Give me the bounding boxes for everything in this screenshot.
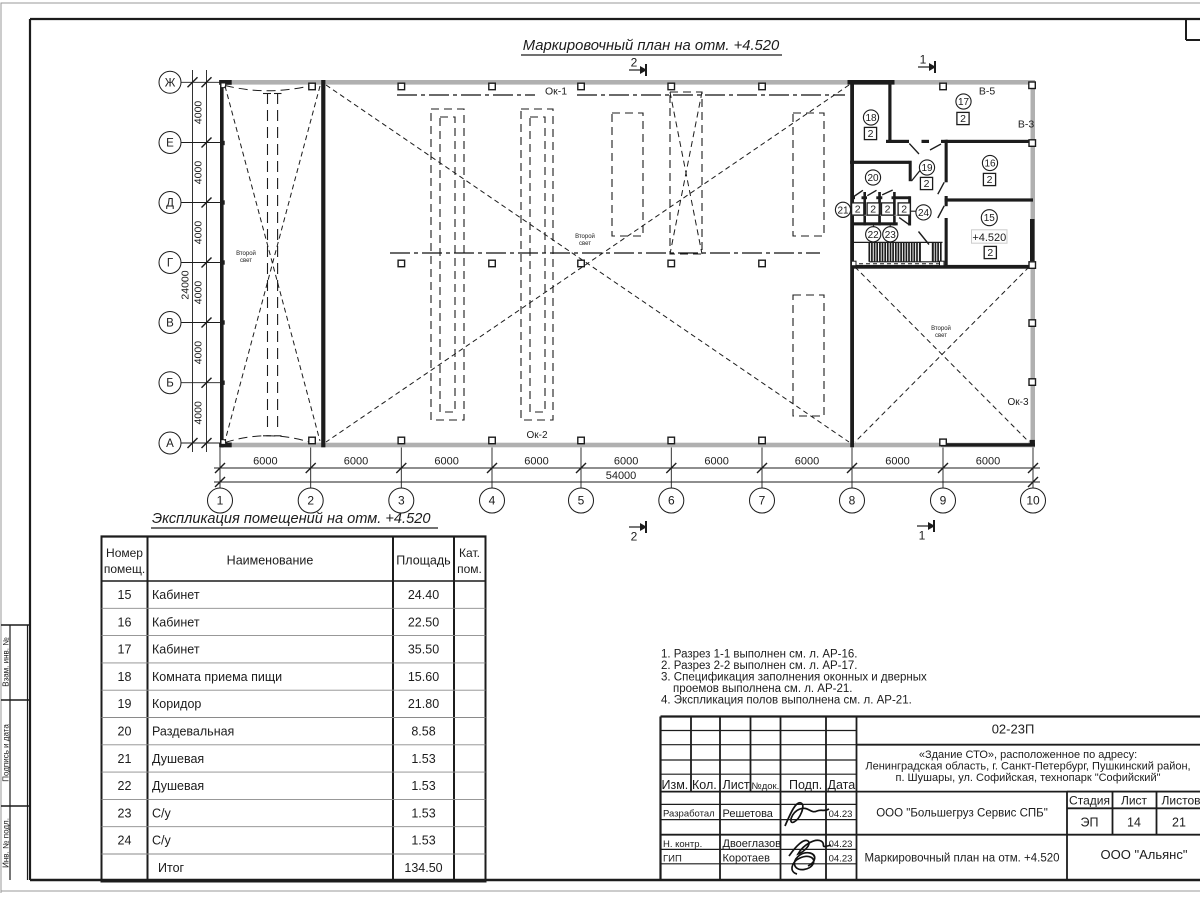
svg-text:04.23: 04.23 bbox=[829, 839, 853, 850]
svg-text:20: 20 bbox=[867, 173, 879, 184]
svg-text:Ок-3: Ок-3 bbox=[1007, 397, 1028, 408]
svg-text:А: А bbox=[166, 438, 174, 450]
svg-text:Кабинет: Кабинет bbox=[152, 615, 200, 629]
svg-text:14: 14 bbox=[1127, 816, 1141, 830]
svg-text:1: 1 bbox=[217, 494, 224, 508]
svg-text:Душевая: Душевая bbox=[152, 752, 204, 766]
svg-text:Д: Д bbox=[166, 198, 174, 210]
svg-text:Взам. инв. №: Взам. инв. № bbox=[1, 637, 10, 687]
svg-text:пом.: пом. bbox=[457, 562, 482, 576]
svg-text:Кабинет: Кабинет bbox=[152, 588, 200, 602]
svg-text:6000: 6000 bbox=[524, 456, 548, 468]
svg-text:свет: свет bbox=[935, 333, 947, 339]
svg-text:21: 21 bbox=[118, 752, 132, 766]
svg-text:Стадия: Стадия bbox=[1069, 794, 1110, 808]
svg-text:21: 21 bbox=[837, 205, 849, 216]
svg-text:Коридор: Коридор bbox=[152, 697, 201, 711]
svg-text:Кол.: Кол. bbox=[692, 778, 717, 792]
svg-text:22: 22 bbox=[868, 230, 880, 241]
svg-text:24000: 24000 bbox=[180, 270, 192, 299]
svg-text:ЭП: ЭП bbox=[1081, 816, 1099, 830]
svg-text:4000: 4000 bbox=[193, 341, 205, 365]
svg-text:Раздевальная: Раздевальная bbox=[152, 724, 234, 738]
svg-text:Б: Б bbox=[166, 378, 174, 390]
svg-text:ГИП: ГИП bbox=[663, 854, 682, 865]
svg-text:Разработал: Разработал bbox=[663, 809, 715, 820]
svg-text:23: 23 bbox=[118, 806, 132, 820]
svg-text:22: 22 bbox=[118, 779, 132, 793]
svg-text:№док.: №док. bbox=[752, 781, 780, 792]
svg-text:Подп.: Подп. bbox=[789, 778, 822, 792]
svg-text:6000: 6000 bbox=[704, 456, 728, 468]
svg-text:«Здание СТО», расположенное по: «Здание СТО», расположенное по адресу: bbox=[919, 749, 1137, 761]
svg-text:20: 20 bbox=[118, 724, 132, 738]
svg-text:2: 2 bbox=[868, 128, 874, 140]
svg-text:6000: 6000 bbox=[976, 456, 1000, 468]
svg-text:6000: 6000 bbox=[614, 456, 638, 468]
svg-text:С/у: С/у bbox=[152, 806, 172, 820]
svg-text:Кат.: Кат. bbox=[459, 546, 480, 560]
svg-text:8: 8 bbox=[849, 494, 856, 508]
svg-text:2: 2 bbox=[631, 530, 638, 544]
svg-text:6000: 6000 bbox=[344, 456, 368, 468]
svg-text:16: 16 bbox=[118, 615, 132, 629]
svg-text:Второй: Второй bbox=[575, 233, 595, 240]
svg-text:Второй: Второй bbox=[236, 250, 256, 257]
svg-text:1.53: 1.53 bbox=[411, 752, 435, 766]
svg-text:2: 2 bbox=[987, 247, 993, 259]
svg-text:Наименование: Наименование bbox=[227, 554, 314, 568]
svg-text:4000: 4000 bbox=[193, 281, 205, 305]
svg-text:ООО "Альянс": ООО "Альянс" bbox=[1101, 847, 1188, 862]
svg-text:Е: Е bbox=[166, 138, 174, 150]
svg-text:Ок-1: Ок-1 bbox=[545, 86, 567, 98]
svg-text:2: 2 bbox=[307, 494, 314, 508]
svg-text:8.58: 8.58 bbox=[411, 724, 435, 738]
svg-text:Площадь: Площадь bbox=[396, 554, 450, 568]
svg-text:15: 15 bbox=[984, 213, 996, 224]
svg-text:23: 23 bbox=[885, 230, 897, 241]
svg-text:1: 1 bbox=[919, 529, 926, 543]
svg-text:1: 1 bbox=[920, 53, 927, 67]
svg-text:Ленинградская область, г. Санк: Ленинградская область, г. Санкт-Петербур… bbox=[865, 761, 1190, 773]
svg-text:10: 10 bbox=[1026, 494, 1040, 508]
svg-text:4: 4 bbox=[489, 494, 496, 508]
svg-text:Маркировочный план на отм. +4.: Маркировочный план на отм. +4.520 bbox=[523, 38, 780, 54]
svg-text:ООО "Большегруз Сервис СПБ": ООО "Большегруз Сервис СПБ" bbox=[876, 808, 1048, 820]
svg-text:21.80: 21.80 bbox=[408, 697, 439, 711]
svg-text:В-5: В-5 bbox=[979, 86, 996, 98]
svg-text:9: 9 bbox=[940, 494, 947, 508]
svg-text:Листов: Листов bbox=[1162, 794, 1200, 808]
svg-text:Инв. № подл.: Инв. № подл. bbox=[1, 818, 10, 868]
svg-text:18: 18 bbox=[118, 670, 132, 684]
svg-text:Дата: Дата bbox=[828, 778, 856, 792]
svg-text:4000: 4000 bbox=[193, 401, 205, 425]
svg-text:35.50: 35.50 bbox=[408, 643, 439, 657]
svg-text:6000: 6000 bbox=[253, 456, 277, 468]
svg-text:2: 2 bbox=[631, 56, 638, 70]
svg-text:Итог: Итог bbox=[158, 861, 185, 875]
svg-text:2: 2 bbox=[855, 204, 861, 216]
svg-text:17: 17 bbox=[958, 97, 970, 108]
svg-text:2: 2 bbox=[870, 204, 876, 216]
svg-text:2: 2 bbox=[924, 178, 930, 190]
svg-text:Номер: Номер bbox=[106, 546, 143, 560]
svg-text:04.23: 04.23 bbox=[829, 809, 853, 820]
svg-text:Лист: Лист bbox=[1121, 794, 1148, 808]
svg-text:Маркировочный план на отм. +4.: Маркировочный план на отм. +4.520 bbox=[864, 853, 1059, 865]
svg-text:1.53: 1.53 bbox=[411, 806, 435, 820]
svg-text:5: 5 bbox=[578, 494, 585, 508]
svg-text:Ж: Ж bbox=[165, 77, 176, 89]
svg-text:Лист: Лист bbox=[723, 778, 750, 792]
svg-text:6: 6 bbox=[668, 494, 675, 508]
svg-text:15: 15 bbox=[118, 588, 132, 602]
svg-text:24: 24 bbox=[118, 834, 132, 848]
svg-text:7: 7 bbox=[759, 494, 766, 508]
svg-text:Второй: Второй bbox=[931, 325, 951, 332]
svg-text:Кабинет: Кабинет bbox=[152, 643, 200, 657]
svg-text:54000: 54000 bbox=[606, 470, 637, 482]
svg-text:3. Спецификация заполнения око: 3. Спецификация заполнения оконных и две… bbox=[661, 672, 927, 684]
svg-text:4000: 4000 bbox=[193, 221, 205, 245]
svg-text:21: 21 bbox=[1172, 816, 1186, 830]
svg-text:Душевая: Душевая bbox=[152, 779, 204, 793]
svg-text:Двоеглазов: Двоеглазов bbox=[723, 838, 782, 850]
svg-text:6000: 6000 bbox=[795, 456, 819, 468]
svg-text:19: 19 bbox=[921, 163, 933, 174]
svg-text:02-23П: 02-23П bbox=[992, 722, 1035, 737]
svg-text:24: 24 bbox=[918, 208, 930, 219]
svg-text:2: 2 bbox=[901, 204, 907, 216]
svg-text:Решетова: Решетова bbox=[723, 808, 774, 820]
svg-text:2: 2 bbox=[885, 204, 891, 216]
svg-text:+4.520: +4.520 bbox=[972, 232, 1006, 244]
svg-text:Коротаев: Коротаев bbox=[723, 853, 771, 865]
svg-text:17: 17 bbox=[118, 643, 132, 657]
svg-text:2. Разрез 2-2 выполнен см. л.: 2. Разрез 2-2 выполнен см. л. АР-17. bbox=[661, 660, 858, 672]
svg-text:6000: 6000 bbox=[434, 456, 458, 468]
svg-text:п. Шушары, ул. Софийская, техн: п. Шушары, ул. Софийская, технопарк "Соф… bbox=[895, 772, 1160, 784]
svg-text:4000: 4000 bbox=[193, 101, 205, 125]
svg-text:24.40: 24.40 bbox=[408, 588, 439, 602]
svg-text:2: 2 bbox=[960, 113, 966, 125]
svg-text:04.23: 04.23 bbox=[829, 854, 853, 865]
svg-text:Экспликация помещений на отм.: Экспликация помещений на отм. +4.520 bbox=[152, 511, 430, 527]
svg-text:Изм.: Изм. bbox=[662, 778, 689, 792]
svg-text:134.50: 134.50 bbox=[404, 861, 442, 875]
svg-text:свет: свет bbox=[579, 241, 591, 247]
svg-text:19: 19 bbox=[118, 697, 132, 711]
svg-text:проемов выполнена см. л. АР-21: проемов выполнена см. л. АР-21. bbox=[673, 683, 852, 695]
svg-text:свет: свет bbox=[240, 258, 252, 264]
svg-text:Ок-2: Ок-2 bbox=[526, 430, 547, 441]
svg-text:1. Разрез 1-1 выполнен см. л.: 1. Разрез 1-1 выполнен см. л. АР-16. bbox=[661, 649, 858, 661]
svg-text:6000: 6000 bbox=[885, 456, 909, 468]
svg-text:Подпись и дата: Подпись и дата bbox=[1, 724, 10, 782]
svg-text:16: 16 bbox=[984, 159, 996, 170]
svg-text:помещ.: помещ. bbox=[104, 562, 145, 576]
svg-text:С/у: С/у bbox=[152, 834, 172, 848]
svg-text:22.50: 22.50 bbox=[408, 615, 439, 629]
svg-text:1.53: 1.53 bbox=[411, 834, 435, 848]
svg-text:3: 3 bbox=[398, 494, 405, 508]
svg-text:4. Экспликация полов выполнена: 4. Экспликация полов выполнена см. л. АР… bbox=[661, 695, 912, 707]
svg-text:В: В bbox=[166, 318, 174, 330]
svg-text:Комната приема пищи: Комната приема пищи bbox=[152, 670, 282, 684]
svg-text:18: 18 bbox=[865, 113, 877, 124]
svg-text:В-3: В-3 bbox=[1018, 119, 1035, 131]
svg-text:1.53: 1.53 bbox=[411, 779, 435, 793]
svg-text:2: 2 bbox=[987, 174, 993, 186]
svg-text:Г: Г bbox=[167, 258, 174, 270]
svg-text:Н. контр.: Н. контр. bbox=[663, 839, 702, 850]
svg-text:15.60: 15.60 bbox=[408, 670, 439, 684]
svg-text:4000: 4000 bbox=[193, 161, 205, 185]
